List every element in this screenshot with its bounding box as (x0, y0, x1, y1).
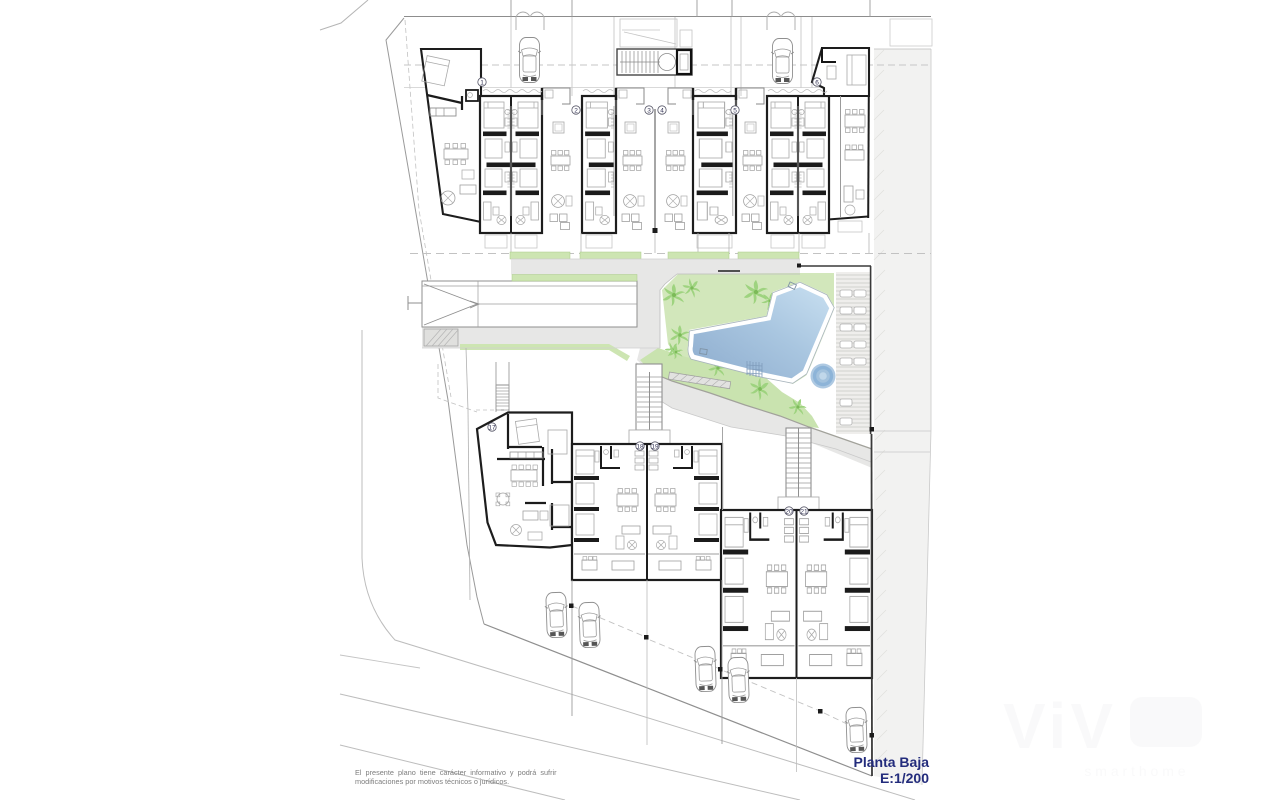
svg-text:E:1/200: E:1/200 (880, 770, 929, 786)
svg-text:5: 5 (733, 108, 737, 115)
svg-text:modificaciones por motivos téc: modificaciones por motivos técnicos o ju… (355, 777, 509, 786)
svg-text:18: 18 (636, 444, 644, 451)
svg-text:ViV: ViV (1003, 690, 1117, 762)
svg-text:21: 21 (800, 509, 808, 516)
svg-text:6: 6 (815, 80, 819, 87)
svg-text:20: 20 (785, 509, 793, 516)
svg-text:19: 19 (651, 444, 659, 451)
svg-text:Planta Baja: Planta Baja (854, 754, 930, 770)
svg-text:2: 2 (574, 108, 578, 115)
svg-text:El presente plano tiene ca: El presente plano tiene carácter informa… (355, 768, 557, 777)
svg-text:17: 17 (488, 425, 496, 432)
svg-text:s m a r t h o m e: s m a r t h o m e (1084, 763, 1185, 779)
svg-text:3: 3 (647, 108, 651, 115)
svg-text:1: 1 (480, 80, 484, 87)
svg-text:4: 4 (660, 108, 664, 115)
